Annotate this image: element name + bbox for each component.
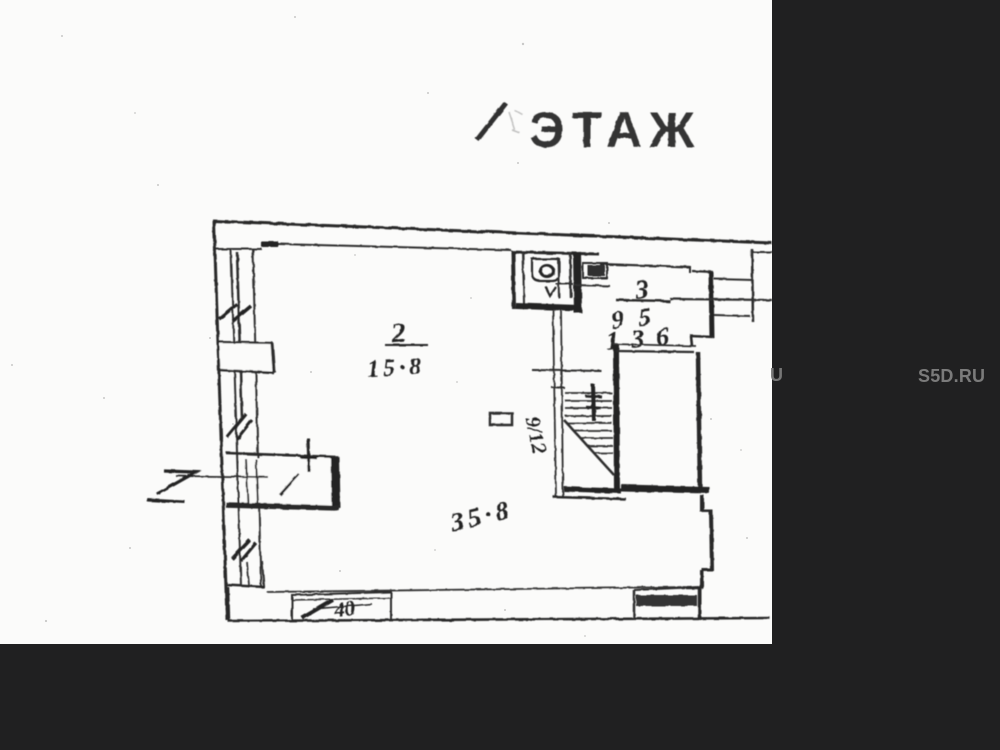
svg-text:40: 40 (332, 596, 357, 623)
svg-text:U: U (770, 365, 783, 385)
svg-text:35·8: 35·8 (446, 494, 515, 538)
svg-text:ЭТАЖ: ЭТАЖ (529, 102, 701, 158)
svg-text:15·8: 15·8 (367, 354, 426, 383)
svg-text:9/12: 9/12 (520, 414, 551, 456)
svg-text:S5D.RU: S5D.RU (918, 366, 985, 386)
